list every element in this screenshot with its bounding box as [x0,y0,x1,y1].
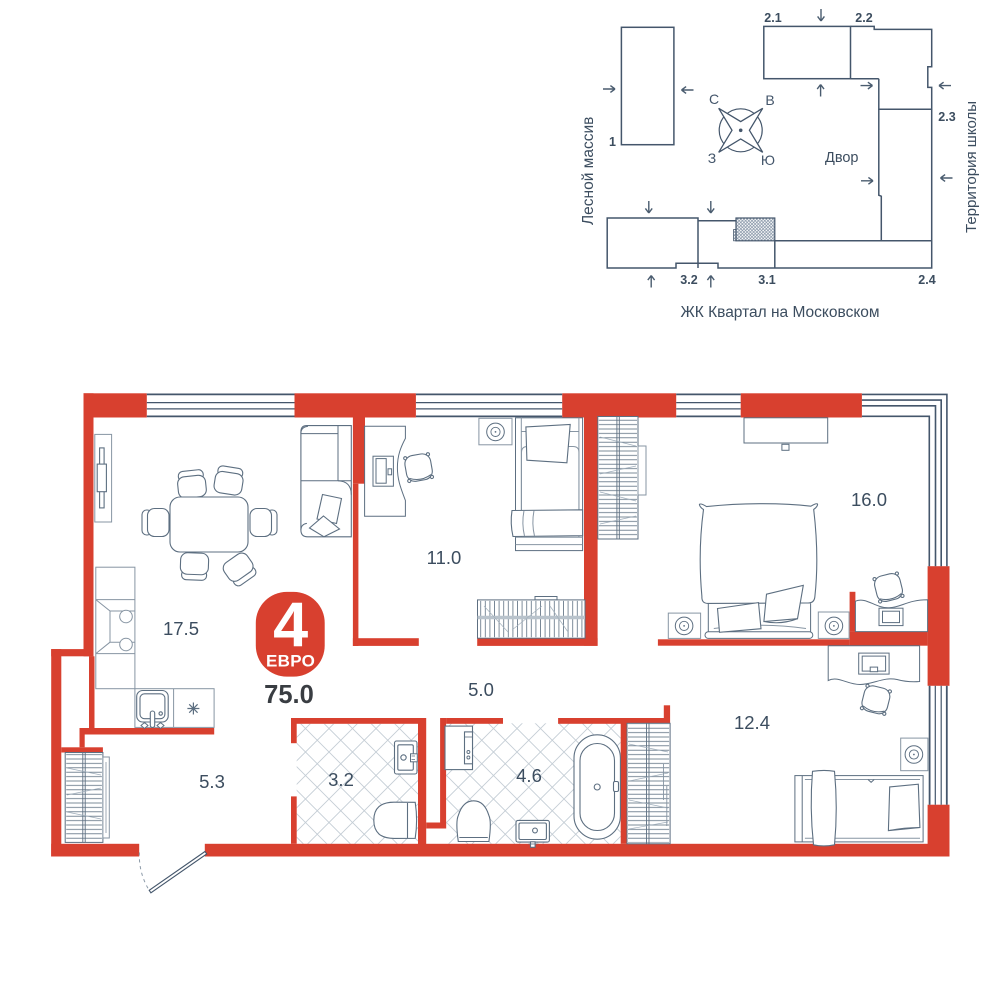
svg-text:5.3: 5.3 [199,771,225,792]
svg-text:2.4: 2.4 [918,273,935,287]
svg-text:3.1: 3.1 [758,273,775,287]
svg-text:4.6: 4.6 [516,765,542,786]
svg-text:16.0: 16.0 [851,489,887,510]
svg-text:ЖК Квартал на Московском: ЖК Квартал на Московском [680,304,879,321]
svg-text:Лесной массив: Лесной массив [580,117,597,225]
svg-text:11.0: 11.0 [427,547,462,568]
svg-text:1: 1 [609,135,616,149]
svg-text:3.2: 3.2 [328,769,354,790]
svg-text:Территория школы: Территория школы [963,101,980,233]
svg-text:2.1: 2.1 [764,11,781,25]
svg-text:3.2: 3.2 [680,273,697,287]
svg-text:4: 4 [273,591,308,661]
svg-text:12.4: 12.4 [734,712,770,733]
svg-text:5.0: 5.0 [468,679,494,700]
svg-text:2.3: 2.3 [938,110,955,124]
svg-text:Ю: Ю [761,152,775,168]
svg-text:Двор: Двор [825,150,859,166]
svg-text:2.2: 2.2 [855,11,872,25]
svg-text:З: З [708,150,716,166]
svg-text:С: С [709,91,719,107]
svg-text:17.5: 17.5 [163,618,199,639]
svg-text:В: В [765,92,774,108]
svg-text:ЕВРО: ЕВРО [266,652,315,671]
svg-text:75.0: 75.0 [264,681,314,709]
